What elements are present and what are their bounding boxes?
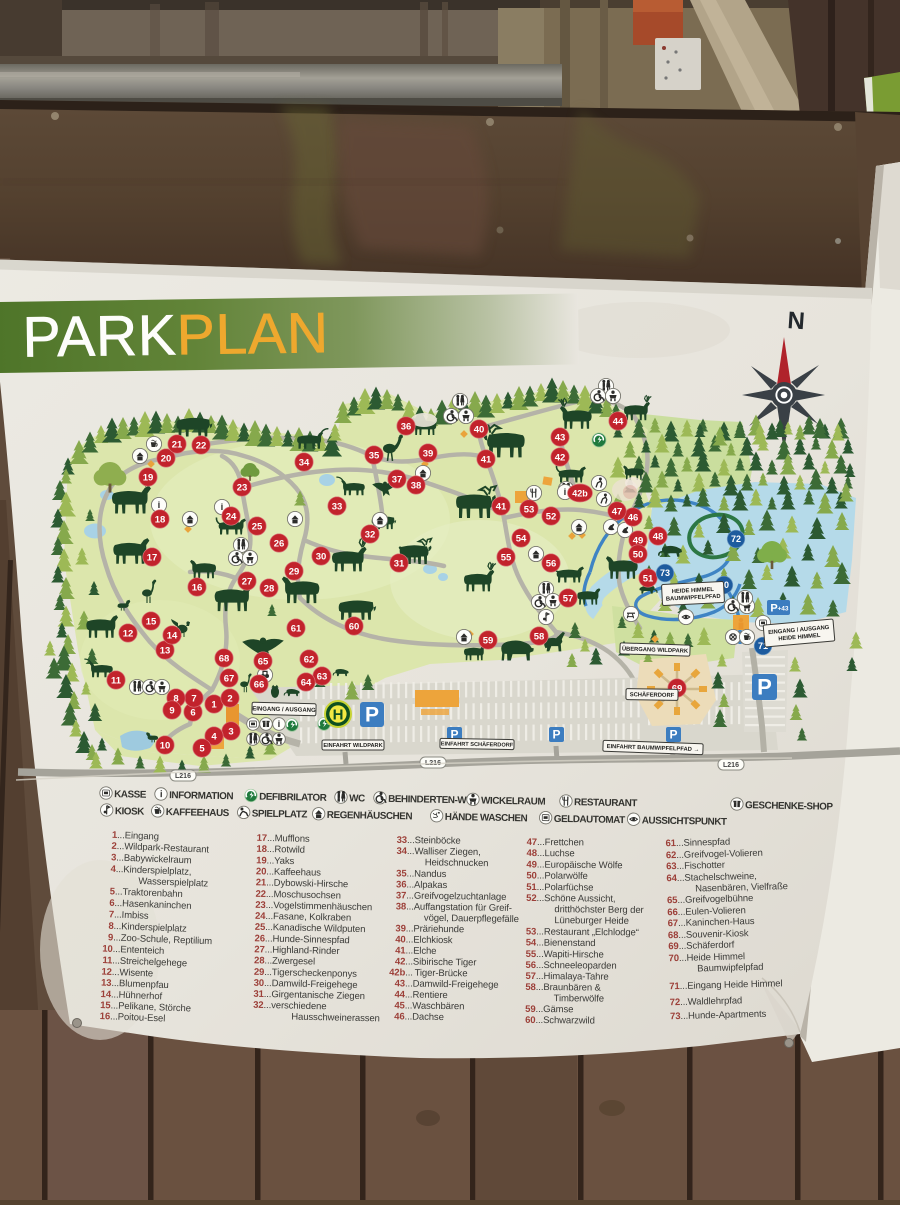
svg-text:17: 17 (147, 552, 158, 563)
svg-text:...Fischotter: ...Fischotter (676, 860, 725, 872)
svg-text:47: 47 (612, 506, 623, 517)
svg-text:...Wapiti-Hirsche: ...Wapiti-Hirsche (536, 949, 604, 961)
svg-text:56: 56 (526, 960, 536, 971)
svg-text:H: H (333, 707, 344, 724)
svg-text:18: 18 (155, 514, 166, 525)
svg-text:26: 26 (274, 538, 285, 549)
svg-text:...Rentiere: ...Rentiere (405, 989, 448, 1001)
svg-text:57: 57 (563, 593, 574, 604)
svg-text:1: 1 (211, 699, 217, 710)
svg-text:L216: L216 (175, 773, 191, 780)
svg-text:41: 41 (496, 501, 507, 512)
svg-text:58: 58 (525, 982, 535, 993)
svg-text:41: 41 (481, 454, 492, 465)
svg-text:26: 26 (254, 933, 265, 944)
svg-text:19: 19 (143, 472, 154, 483)
svg-text:...Alpakas: ...Alpakas (406, 879, 447, 891)
svg-text:RESTAURANT: RESTAURANT (574, 797, 637, 809)
svg-text:HÄNDE WASCHEN: HÄNDE WASCHEN (445, 812, 528, 824)
svg-text:40: 40 (474, 424, 485, 435)
svg-text:29: 29 (289, 566, 300, 577)
svg-text:36: 36 (401, 421, 412, 432)
svg-text:6: 6 (190, 707, 195, 718)
svg-text:...Luchse: ...Luchse (537, 848, 575, 859)
svg-text:14: 14 (167, 630, 178, 641)
svg-text:P: P (365, 704, 379, 727)
svg-text:23: 23 (255, 900, 266, 911)
svg-text:40: 40 (395, 934, 406, 945)
svg-text:BEHINDERTEN-WC: BEHINDERTEN-WC (388, 794, 473, 806)
svg-text:...Elchkiosk: ...Elchkiosk (406, 934, 453, 946)
svg-text:48: 48 (527, 848, 537, 859)
svg-text:...Restaurant „Elchlodge“: ...Restaurant „Elchlodge“ (536, 926, 639, 938)
svg-text:...Zwergesel: ...Zwergesel (264, 955, 315, 967)
svg-text:P: P (757, 675, 772, 700)
svg-text:29: 29 (254, 967, 265, 978)
svg-text:18: 18 (256, 844, 267, 855)
svg-text:33: 33 (397, 835, 408, 846)
svg-text:...Präriehunde: ...Präriehunde (406, 923, 464, 935)
svg-text:49: 49 (526, 859, 536, 870)
svg-text:23: 23 (237, 482, 248, 493)
svg-text:22: 22 (255, 889, 266, 900)
svg-text:37: 37 (396, 890, 407, 901)
svg-text:73: 73 (670, 1011, 681, 1022)
svg-text:11: 11 (111, 675, 122, 686)
svg-text:...Polarwölfe: ...Polarwölfe (537, 870, 588, 881)
svg-text:68: 68 (668, 930, 679, 941)
svg-text:9: 9 (169, 705, 174, 716)
svg-text:...verschiedene: ...verschiedene (263, 1000, 326, 1012)
svg-text:WC: WC (349, 793, 365, 804)
svg-text:+43: +43 (777, 606, 788, 613)
svg-text:31: 31 (394, 558, 405, 569)
svg-text:10: 10 (160, 740, 171, 751)
svg-text:KAFFEEHAUS: KAFFEEHAUS (166, 807, 230, 819)
svg-text:...Frettchen: ...Frettchen (537, 837, 584, 848)
svg-text:34: 34 (299, 457, 310, 468)
svg-text:...Europäische Wölfe: ...Europäische Wölfe (537, 859, 623, 871)
svg-text:68: 68 (219, 653, 230, 664)
svg-text:N: N (787, 307, 806, 335)
svg-text:21: 21 (172, 439, 183, 450)
svg-text:27: 27 (254, 944, 265, 955)
svg-text:SCHÄFERDORF: SCHÄFERDORF (630, 691, 675, 699)
svg-text:...Schäferdorf: ...Schäferdorf (678, 939, 734, 951)
svg-text:AUSSICHTSPUNKT: AUSSICHTSPUNKT (642, 815, 727, 827)
svg-text:24: 24 (226, 511, 237, 522)
svg-text:19: 19 (256, 855, 267, 866)
svg-text:12: 12 (123, 628, 134, 639)
svg-text:56: 56 (546, 558, 557, 569)
svg-text:KIOSK: KIOSK (115, 806, 146, 818)
svg-text:32: 32 (253, 1000, 264, 1011)
svg-text:...Schneeleoparden: ...Schneeleoparden (536, 960, 617, 972)
svg-text:16: 16 (100, 1011, 111, 1022)
svg-text:P: P (552, 728, 560, 742)
svg-text:...Braunbären &: ...Braunbären & (536, 982, 602, 994)
svg-text:Timberwölfe: Timberwölfe (554, 993, 604, 1004)
svg-text:Lüneburger Heide: Lüneburger Heide (554, 915, 629, 927)
svg-text:30: 30 (254, 978, 265, 989)
svg-text:37: 37 (392, 474, 403, 485)
svg-text:GESCHENKE-SHOP: GESCHENKE-SHOP (745, 800, 834, 813)
svg-text:2: 2 (227, 693, 232, 704)
svg-text:i: i (564, 487, 567, 498)
svg-text:27: 27 (242, 576, 253, 587)
svg-text:50: 50 (633, 549, 644, 560)
svg-text:36: 36 (396, 879, 407, 890)
svg-text:67: 67 (668, 918, 679, 929)
svg-text:5: 5 (199, 743, 205, 754)
svg-text:61: 61 (291, 623, 302, 634)
svg-text:69: 69 (668, 941, 679, 952)
svg-text:39: 39 (423, 448, 434, 459)
svg-text:43: 43 (395, 978, 406, 989)
svg-text:4: 4 (211, 731, 217, 742)
svg-text:33: 33 (332, 501, 343, 512)
svg-text:REGENHÄUSCHEN: REGENHÄUSCHEN (327, 810, 413, 822)
svg-text:...Bienenstand: ...Bienenstand (536, 937, 595, 949)
svg-text:42b: 42b (572, 488, 588, 498)
svg-text:59: 59 (483, 635, 494, 646)
svg-text:L216: L216 (723, 762, 739, 769)
svg-text:13: 13 (101, 977, 112, 988)
svg-text:42b: 42b (389, 967, 406, 978)
svg-text:P: P (669, 728, 677, 742)
svg-text:28: 28 (264, 583, 275, 594)
svg-text:20: 20 (161, 453, 172, 464)
svg-text:...Kaninchen-Haus: ...Kaninchen-Haus (678, 916, 755, 929)
svg-text:EINFAHRT SCHÄFERDORF: EINFAHRT SCHÄFERDORF (441, 740, 514, 748)
svg-text:7: 7 (191, 693, 196, 704)
svg-text:...Waldlehrpfad: ...Waldlehrpfad (680, 995, 742, 1008)
svg-text:GELDAUTOMAT: GELDAUTOMAT (554, 814, 626, 826)
svg-text:...Elche: ...Elche (405, 945, 436, 956)
svg-text:72: 72 (670, 997, 681, 1008)
svg-text:28: 28 (254, 955, 265, 966)
svg-text:13: 13 (160, 645, 171, 656)
svg-text:Hausschweinerassen: Hausschweinerassen (291, 1012, 380, 1025)
svg-text:44: 44 (613, 416, 624, 427)
svg-text:20: 20 (256, 866, 267, 877)
svg-text:...Gämse: ...Gämse (536, 1004, 574, 1015)
svg-text:i: i (278, 719, 281, 730)
svg-text:42: 42 (395, 956, 406, 967)
svg-text:60: 60 (525, 1015, 535, 1026)
svg-text:INFORMATION: INFORMATION (169, 790, 233, 802)
svg-text:EINFAHRT WILDPARK: EINFAHRT WILDPARK (323, 743, 382, 749)
svg-text:15: 15 (146, 616, 157, 627)
svg-text:...Mufflons: ...Mufflons (267, 833, 310, 845)
svg-text:...Rotwild: ...Rotwild (267, 844, 305, 856)
svg-text:38: 38 (396, 901, 407, 912)
svg-text:10: 10 (102, 944, 113, 955)
svg-text:...Walliser Ziegen,: ...Walliser Ziegen, (407, 846, 481, 858)
svg-text:i: i (160, 789, 162, 800)
svg-text:53: 53 (526, 926, 536, 937)
svg-text:...Yaks: ...Yaks (266, 855, 294, 867)
svg-text:60: 60 (349, 621, 360, 632)
svg-text:42: 42 (555, 452, 566, 463)
svg-text:59: 59 (525, 1004, 535, 1015)
svg-text:... Tiger-Brücke: ... Tiger-Brücke (405, 967, 467, 979)
svg-text:47: 47 (527, 837, 537, 848)
svg-text:WICKELRAUM: WICKELRAUM (481, 796, 545, 808)
svg-text:38: 38 (411, 480, 422, 491)
svg-text:72: 72 (731, 534, 741, 544)
svg-text:PARKPLAN: PARKPLAN (22, 301, 329, 370)
svg-text:16: 16 (192, 582, 203, 593)
svg-text:22: 22 (196, 440, 207, 451)
svg-text:...Schöne Aussicht,: ...Schöne Aussicht, (536, 893, 615, 905)
svg-text:12: 12 (101, 967, 112, 978)
svg-text:...Auffangstation für Greif-: ...Auffangstation für Greif- (406, 901, 512, 913)
svg-text:...Sinnespfad: ...Sinnespfad (676, 837, 730, 849)
svg-text:73: 73 (660, 568, 670, 578)
svg-text:66: 66 (254, 679, 265, 690)
svg-text:65: 65 (258, 656, 269, 667)
svg-text:52: 52 (546, 511, 557, 522)
svg-text:39: 39 (395, 923, 406, 934)
svg-text:DEFIBRILATOR: DEFIBRILATOR (259, 792, 327, 804)
svg-text:50: 50 (526, 870, 536, 881)
svg-text:...Waschbären: ...Waschbären (405, 1000, 465, 1012)
svg-text:...Poitou-Esel: ...Poitou-Esel (110, 1011, 165, 1024)
svg-text:30: 30 (316, 551, 327, 562)
svg-text:...Greifvogelbühne: ...Greifvogelbühne (677, 893, 753, 906)
svg-text:57: 57 (525, 971, 535, 982)
svg-text:58: 58 (534, 631, 545, 642)
svg-text:63: 63 (666, 861, 677, 872)
svg-text:...Steinböcke: ...Steinböcke (407, 835, 461, 847)
svg-text:...Schwarzwild: ...Schwarzwild (535, 1015, 594, 1027)
svg-text:...Dachse: ...Dachse (404, 1011, 443, 1023)
svg-text:53: 53 (524, 504, 535, 515)
svg-text:62: 62 (304, 654, 315, 665)
svg-text:SPIELPLATZ: SPIELPLATZ (252, 809, 308, 821)
svg-text:...Himalaya-Tahre: ...Himalaya-Tahre (536, 971, 609, 983)
svg-text:51: 51 (643, 573, 654, 584)
svg-text:43: 43 (555, 432, 566, 443)
svg-text:46: 46 (628, 512, 639, 523)
svg-text:52: 52 (526, 893, 536, 904)
svg-text:17: 17 (257, 833, 268, 844)
svg-text:63: 63 (317, 671, 328, 682)
svg-text:54: 54 (516, 533, 527, 544)
svg-text:67: 67 (224, 673, 235, 684)
svg-text:32: 32 (365, 529, 376, 540)
svg-text:66: 66 (667, 907, 678, 918)
svg-text:KASSE: KASSE (114, 789, 147, 801)
svg-text:Baumwipfelpfad: Baumwipfelpfad (697, 962, 763, 975)
svg-text:3: 3 (228, 726, 233, 737)
svg-text:...Imbiss: ...Imbiss (114, 909, 149, 921)
svg-text:...Hunde-Apartments: ...Hunde-Apartments (680, 1009, 766, 1022)
svg-text:46: 46 (394, 1011, 405, 1022)
svg-text:70: 70 (668, 953, 679, 964)
svg-text:...Nandus: ...Nandus (406, 868, 446, 880)
svg-text:25: 25 (252, 521, 263, 532)
svg-text:Heidschnucken: Heidschnucken (425, 857, 489, 869)
svg-text:48: 48 (653, 531, 664, 542)
svg-text:35: 35 (369, 450, 380, 461)
svg-text:...Souvenir-Kiosk: ...Souvenir-Kiosk (678, 928, 749, 941)
svg-text:dritthöchster Berg der: dritthöchster Berg der (554, 904, 643, 916)
svg-text:...Polarfüchse: ...Polarfüchse (537, 882, 594, 893)
svg-text:55: 55 (501, 552, 512, 563)
svg-text:64: 64 (301, 677, 312, 688)
svg-text:62: 62 (666, 850, 677, 861)
